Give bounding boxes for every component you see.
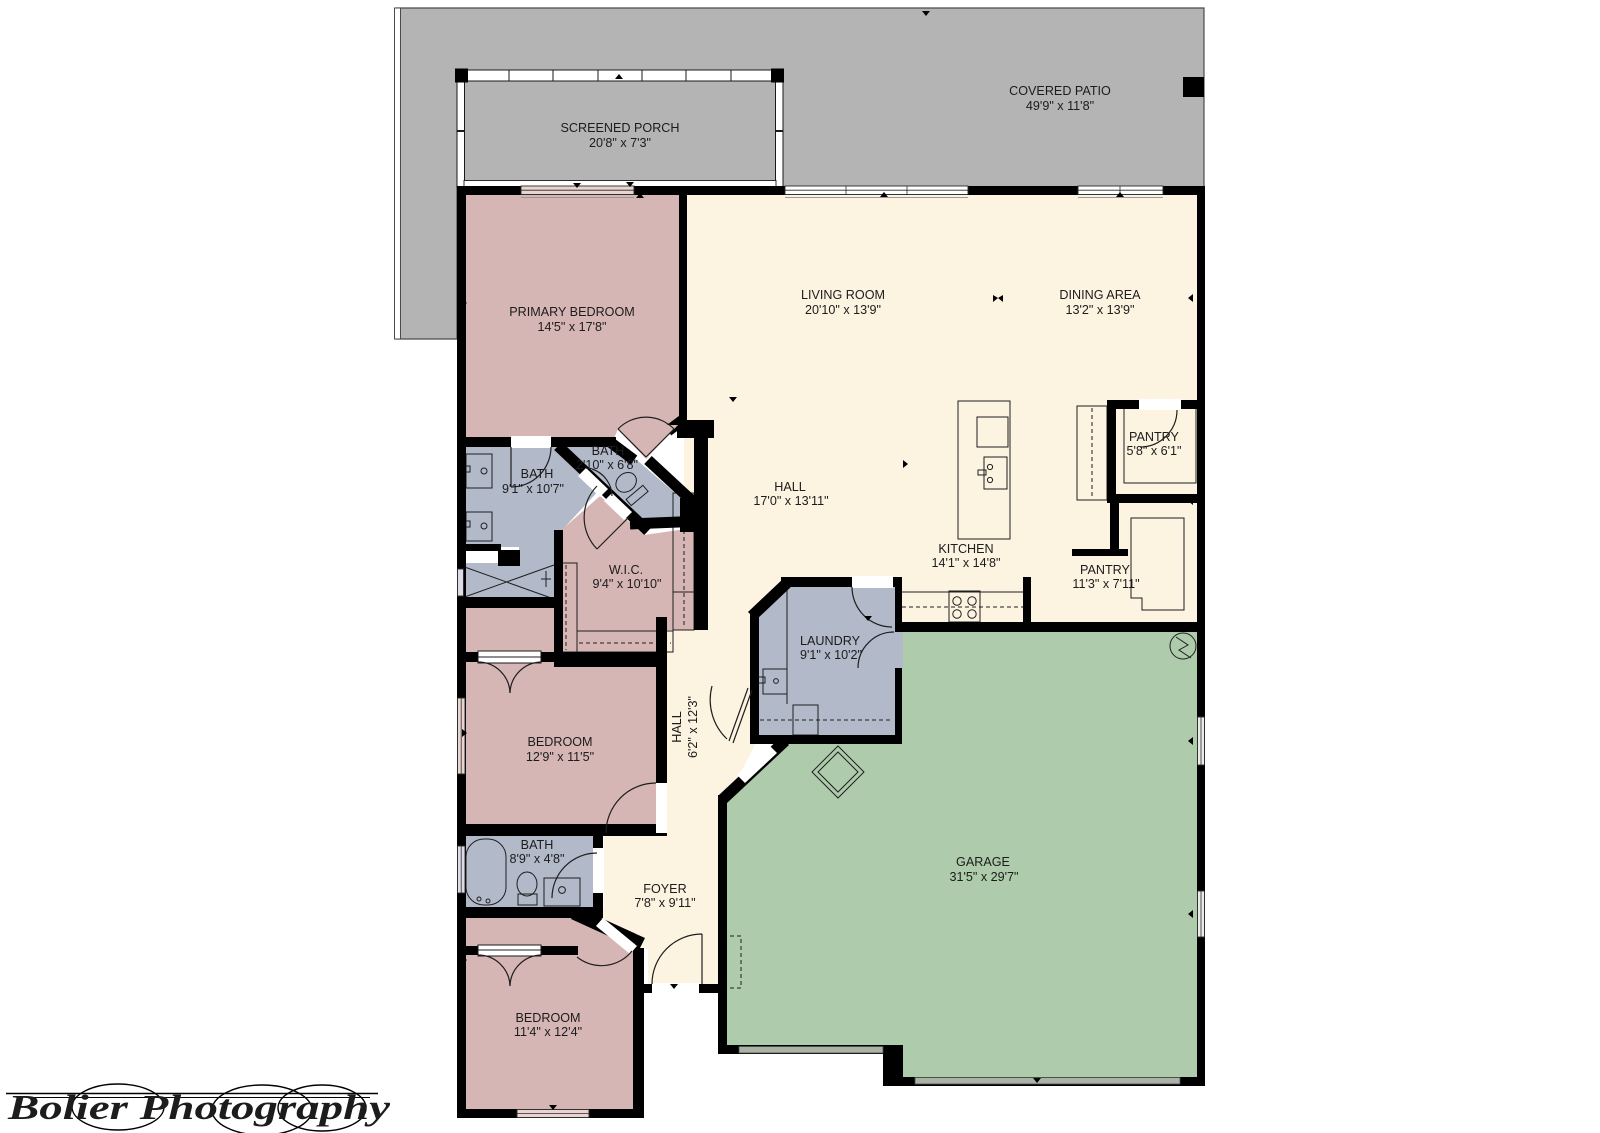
- svg-text:6'2" x 12'3": 6'2" x 12'3": [686, 696, 700, 758]
- svg-text:14'1" x 14'8": 14'1" x 14'8": [931, 556, 1000, 570]
- svg-text:HALL: HALL: [774, 480, 806, 494]
- svg-text:9'1" x 10'7": 9'1" x 10'7": [502, 482, 564, 496]
- svg-text:BEDROOM: BEDROOM: [515, 1011, 580, 1025]
- svg-text:SCREENED PORCH: SCREENED PORCH: [561, 121, 680, 135]
- svg-text:PANTRY: PANTRY: [1080, 563, 1131, 577]
- svg-text:FOYER: FOYER: [643, 882, 686, 896]
- svg-text:17'0" x 13'11": 17'0" x 13'11": [753, 494, 828, 508]
- svg-text:2'10" x 6'8": 2'10" x 6'8": [576, 458, 638, 472]
- svg-text:11'3" x 7'11": 11'3" x 7'11": [1072, 577, 1139, 591]
- svg-text:5'8" x 6'1": 5'8" x 6'1": [1126, 444, 1181, 458]
- svg-text:BATH: BATH: [521, 467, 554, 481]
- svg-text:COVERED PATIO: COVERED PATIO: [1009, 84, 1111, 98]
- svg-text:9'1" x 10'2": 9'1" x 10'2": [800, 648, 862, 662]
- svg-text:LAUNDRY: LAUNDRY: [800, 634, 861, 648]
- svg-text:GARAGE: GARAGE: [956, 855, 1010, 869]
- svg-text:PRIMARY BEDROOM: PRIMARY BEDROOM: [509, 305, 635, 319]
- svg-text:KITCHEN: KITCHEN: [938, 542, 993, 556]
- svg-text:LIVING ROOM: LIVING ROOM: [801, 288, 885, 302]
- svg-text:14'5" x 17'8": 14'5" x 17'8": [537, 320, 606, 334]
- svg-text:49'9" x 11'8": 49'9" x 11'8": [1026, 99, 1094, 113]
- svg-text:BATH: BATH: [521, 838, 554, 852]
- svg-text:13'2" x 13'9": 13'2" x 13'9": [1065, 303, 1134, 317]
- svg-text:BATH: BATH: [592, 444, 625, 458]
- svg-text:PANTRY: PANTRY: [1129, 430, 1180, 444]
- svg-text:8'9" x 4'8": 8'9" x 4'8": [509, 852, 564, 866]
- svg-text:20'8" x 7'3": 20'8" x 7'3": [589, 136, 651, 150]
- svg-text:31'5" x 29'7": 31'5" x 29'7": [949, 870, 1018, 884]
- svg-text:BEDROOM: BEDROOM: [527, 735, 592, 749]
- svg-text:12'9" x 11'5": 12'9" x 11'5": [526, 750, 594, 764]
- svg-text:Bolier Photography: Bolier Photography: [7, 1088, 391, 1127]
- svg-text:20'10" x 13'9": 20'10" x 13'9": [805, 303, 881, 317]
- svg-text:W.I.C.: W.I.C.: [609, 563, 643, 577]
- svg-text:9'4" x 10'10": 9'4" x 10'10": [592, 577, 661, 591]
- svg-text:7'8" x 9'11": 7'8" x 9'11": [634, 896, 695, 910]
- svg-text:HALL: HALL: [670, 711, 684, 743]
- svg-text:11'4" x 12'4": 11'4" x 12'4": [514, 1025, 582, 1039]
- svg-text:DINING AREA: DINING AREA: [1059, 288, 1141, 302]
